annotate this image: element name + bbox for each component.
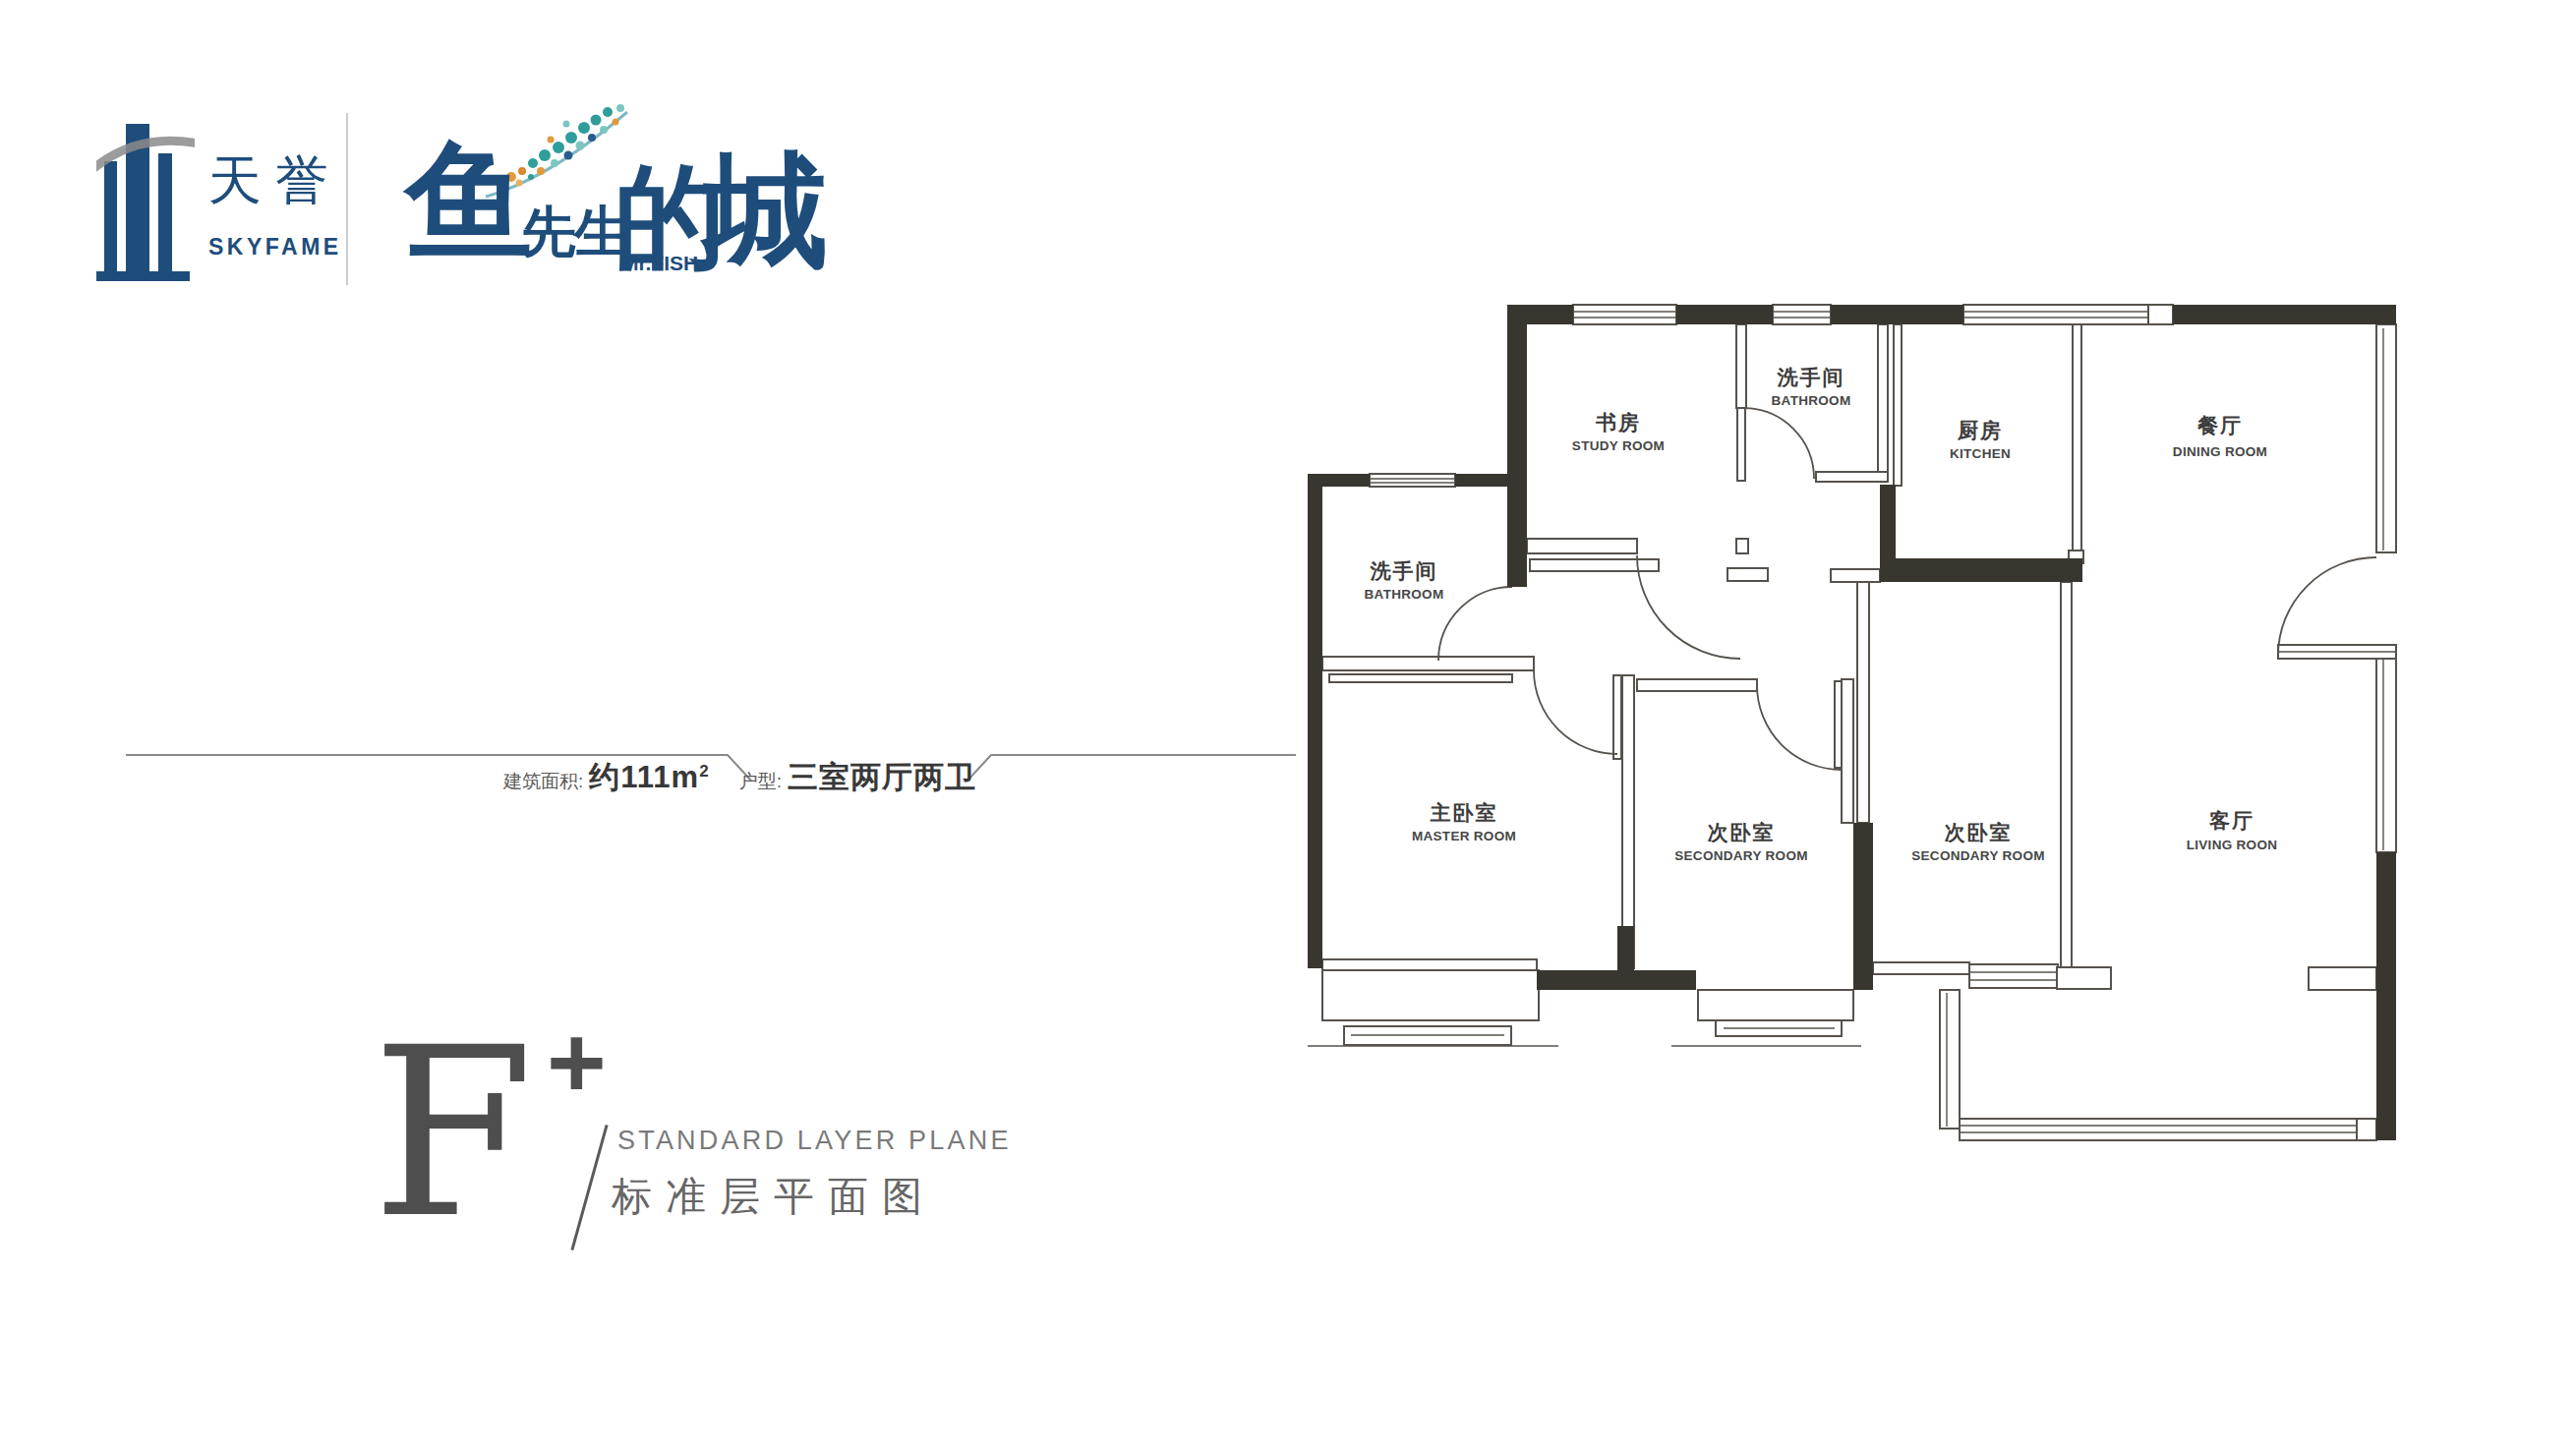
room-labels: 书房 STUDY ROOM 洗手间 BATHROOM 厨房 KITCHEN 餐厅… bbox=[1365, 366, 2278, 863]
logo-divider bbox=[346, 113, 348, 285]
room-label-dining-en: DINING ROOM bbox=[2173, 444, 2267, 459]
room-label-master-en: MASTER ROOM bbox=[1412, 829, 1516, 843]
room-label-kitchen-cn: 厨房 bbox=[1957, 419, 2003, 441]
plan-letter: F bbox=[372, 1034, 534, 1233]
type-label: 户型: bbox=[739, 769, 782, 794]
spec-row: 建筑面积: 约111m2 户型: 三室两厅两卫 bbox=[503, 757, 976, 798]
room-label-kitchen-en: KITCHEN bbox=[1950, 446, 2011, 461]
room-label-study-en: STUDY ROOM bbox=[1572, 438, 1665, 453]
area-value-sup: 2 bbox=[699, 762, 709, 781]
room-label-dining-cn: 餐厅 bbox=[2196, 414, 2243, 436]
area-value-text: 约111m bbox=[589, 760, 699, 794]
room-label-secondary2-cn: 次卧室 bbox=[1945, 821, 2013, 843]
room-label-secondary2-en: SECONDARY ROOM bbox=[1911, 848, 2044, 863]
product-char-xiansheng: 先生 bbox=[521, 204, 627, 260]
subtitle-cn: 标准层平面图 bbox=[612, 1170, 936, 1224]
room-label-bathroom-top-cn: 洗手间 bbox=[1777, 366, 1845, 388]
brand-name-en: SKYFAME bbox=[208, 234, 342, 261]
entry-door-arc bbox=[2278, 557, 2376, 656]
left-bathroom-door-arc bbox=[1438, 587, 1512, 661]
top-bathroom-door-arc bbox=[1743, 408, 1814, 479]
title-slash bbox=[570, 1125, 608, 1250]
room-label-master-cn: 主卧室 bbox=[1430, 801, 1498, 824]
room-label-living-en: LIVING ROON bbox=[2187, 838, 2278, 852]
brand-name-cn: 天誉 bbox=[208, 145, 342, 217]
product-name-en: Mr.FISH bbox=[621, 252, 698, 275]
building-icon bbox=[96, 110, 195, 289]
floor-plan: 书房 STUDY ROOM 洗手间 BATHROOM 厨房 KITCHEN 餐厅… bbox=[1278, 275, 2429, 1160]
room-label-secondary1-cn: 次卧室 bbox=[1708, 821, 1776, 843]
type-value: 三室两厅两卫 bbox=[788, 757, 976, 798]
area-label: 建筑面积: bbox=[503, 769, 583, 794]
header: 天誉 SKYFAME 鱼 先 bbox=[0, 0, 983, 315]
room-label-study-cn: 书房 bbox=[1595, 411, 1641, 434]
room-label-secondary1-en: SECONDARY ROOM bbox=[1674, 848, 1807, 863]
room-label-living-cn: 客厅 bbox=[2208, 809, 2254, 832]
room-label-bathroom-top-en: BATHROOM bbox=[1772, 393, 1851, 408]
plan-letter-plus: + bbox=[547, 1011, 607, 1113]
product-char-cheng: 城 bbox=[704, 149, 828, 273]
area-value: 约111m2 bbox=[589, 757, 709, 798]
product-char-yu: 鱼 bbox=[405, 138, 533, 265]
room-label-bathroom-left-en: BATHROOM bbox=[1365, 587, 1444, 602]
door-arcs bbox=[1438, 408, 2376, 770]
subtitle-en: STANDARD LAYER PLANE bbox=[617, 1126, 1012, 1156]
secondary1-door-arc bbox=[1757, 685, 1842, 770]
room-label-bathroom-left-cn: 洗手间 bbox=[1370, 559, 1438, 582]
master-door-arc bbox=[1534, 670, 1617, 754]
